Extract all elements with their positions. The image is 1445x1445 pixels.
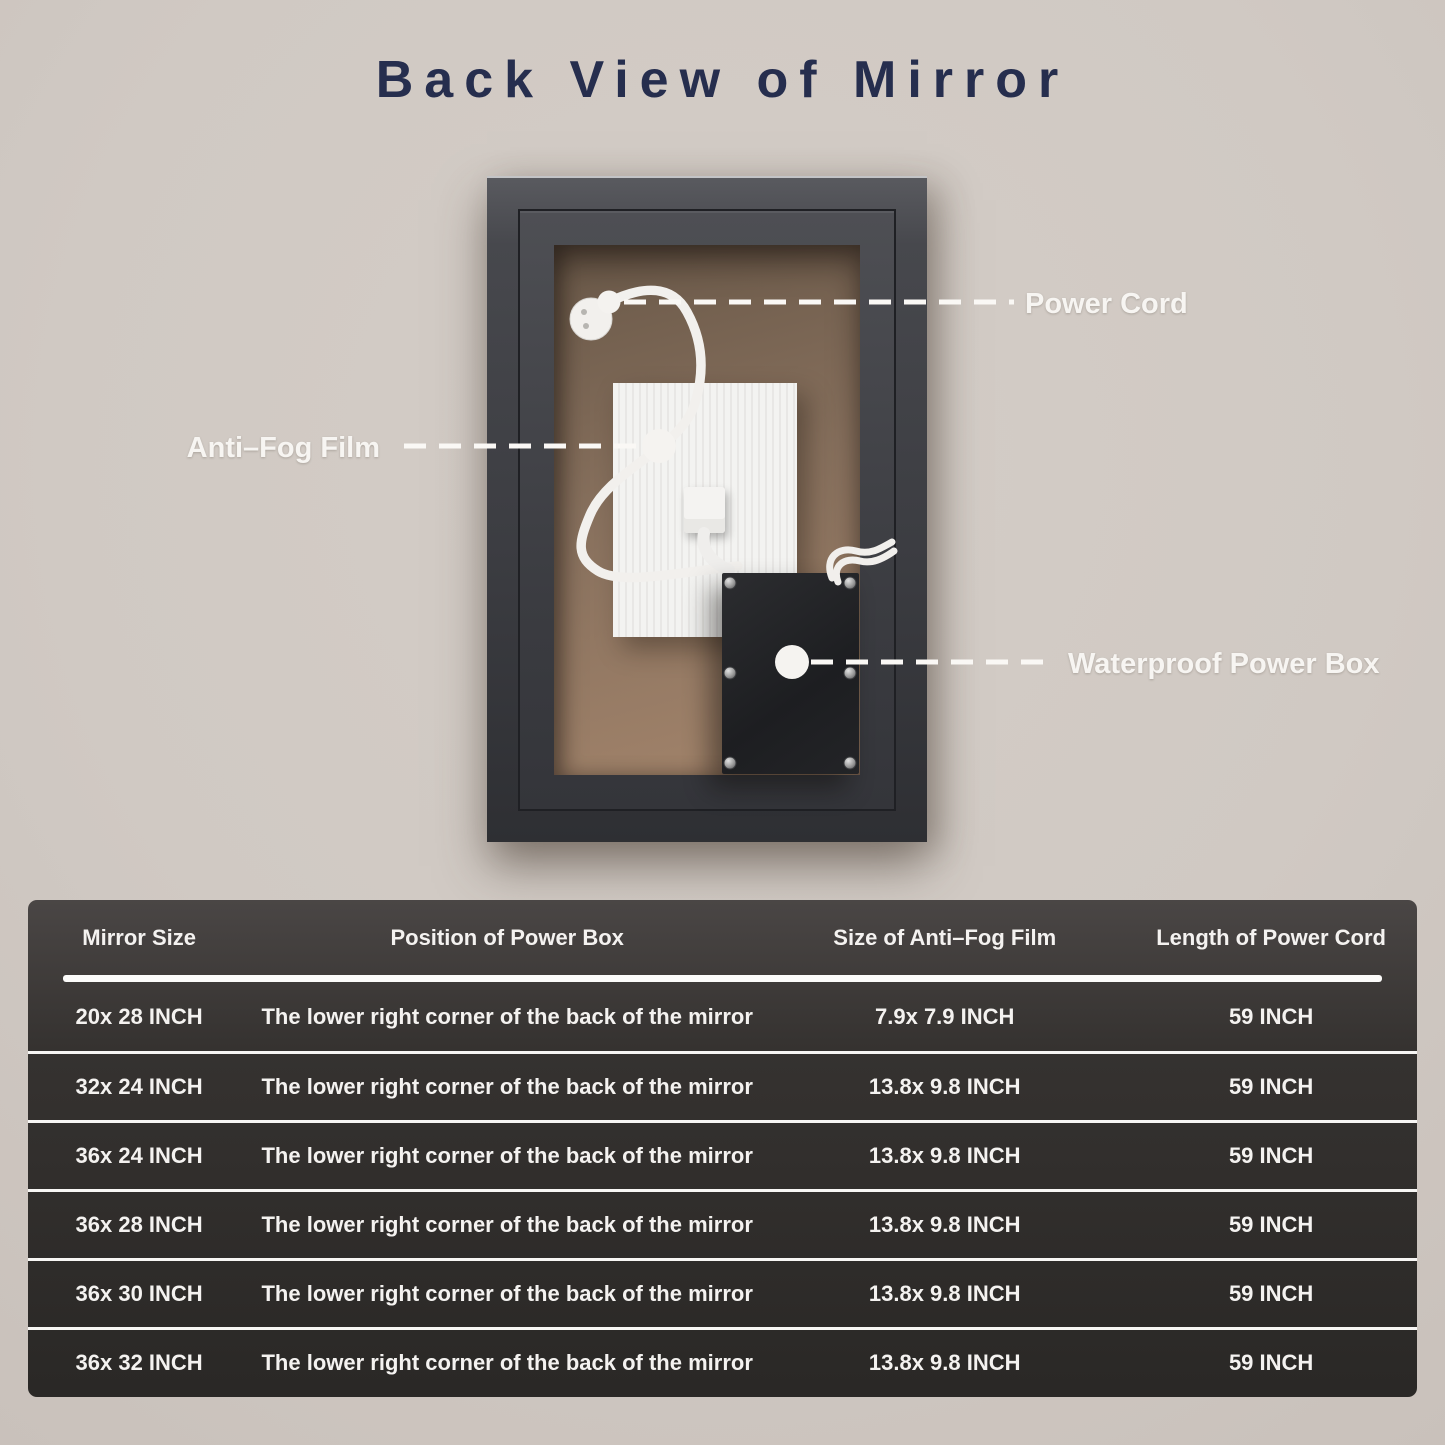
table-row: 36x 32 INCH The lower right corner of th…	[28, 1327, 1417, 1396]
cell-film-size: 13.8x 9.8 INCH	[764, 1074, 1125, 1100]
cell-film-size: 13.8x 9.8 INCH	[764, 1350, 1125, 1376]
table-row: 36x 24 INCH The lower right corner of th…	[28, 1120, 1417, 1189]
screw-icon	[724, 577, 737, 590]
cell-mirror-size: 36x 28 INCH	[28, 1212, 250, 1238]
page-title: Back View of Mirror	[0, 50, 1445, 110]
cell-power-box-position: The lower right corner of the back of th…	[250, 1074, 764, 1100]
column-header-film-size: Size of Anti–Fog Film	[764, 925, 1125, 951]
cell-power-box-position: The lower right corner of the back of th…	[250, 1350, 764, 1376]
cell-power-box-position: The lower right corner of the back of th…	[250, 1143, 764, 1169]
cell-cord-length: 59 INCH	[1125, 1074, 1417, 1100]
cell-cord-length: 59 INCH	[1125, 1212, 1417, 1238]
header-underline	[63, 975, 1382, 982]
waterproof-power-box-label: Waterproof Power Box	[1068, 648, 1380, 681]
page: Back View of Mirror	[0, 0, 1445, 1445]
film-cable-connector	[684, 487, 725, 533]
cell-mirror-size: 36x 24 INCH	[28, 1143, 250, 1169]
table-row: 20x 28 INCH The lower right corner of th…	[28, 982, 1417, 1051]
table-row: 36x 28 INCH The lower right corner of th…	[28, 1189, 1417, 1258]
cell-mirror-size: 36x 30 INCH	[28, 1281, 250, 1307]
table-row: 36x 30 INCH The lower right corner of th…	[28, 1258, 1417, 1327]
screw-icon	[844, 577, 857, 590]
screw-icon	[844, 667, 857, 680]
cell-cord-length: 59 INCH	[1125, 1281, 1417, 1307]
cell-film-size: 13.8x 9.8 INCH	[764, 1212, 1125, 1238]
power-cord-label: Power Cord	[1025, 288, 1188, 321]
cell-film-size: 7.9x 7.9 INCH	[764, 1004, 1125, 1030]
anti-fog-film-label: Anti–Fog Film	[130, 432, 380, 465]
cell-cord-length: 59 INCH	[1125, 1143, 1417, 1169]
screw-icon	[724, 667, 737, 680]
cell-power-box-position: The lower right corner of the back of th…	[250, 1004, 764, 1030]
cell-mirror-size: 32x 24 INCH	[28, 1074, 250, 1100]
column-header-cord-length: Length of Power Cord	[1125, 925, 1417, 951]
spec-table-header-row: Mirror Size Position of Power Box Size o…	[28, 900, 1417, 975]
cell-power-box-position: The lower right corner of the back of th…	[250, 1281, 764, 1307]
cell-power-box-position: The lower right corner of the back of th…	[250, 1212, 764, 1238]
cell-mirror-size: 36x 32 INCH	[28, 1350, 250, 1376]
screw-icon	[724, 757, 737, 770]
table-row: 32x 24 INCH The lower right corner of th…	[28, 1051, 1417, 1120]
cell-film-size: 13.8x 9.8 INCH	[764, 1281, 1125, 1307]
cell-cord-length: 59 INCH	[1125, 1350, 1417, 1376]
cell-cord-length: 59 INCH	[1125, 1004, 1417, 1030]
column-header-mirror-size: Mirror Size	[28, 925, 250, 951]
column-header-power-box-position: Position of Power Box	[250, 925, 764, 951]
cell-film-size: 13.8x 9.8 INCH	[764, 1143, 1125, 1169]
screw-icon	[844, 757, 857, 770]
spec-table: Mirror Size Position of Power Box Size o…	[28, 900, 1417, 1397]
waterproof-power-box	[722, 573, 859, 774]
cell-mirror-size: 20x 28 INCH	[28, 1004, 250, 1030]
